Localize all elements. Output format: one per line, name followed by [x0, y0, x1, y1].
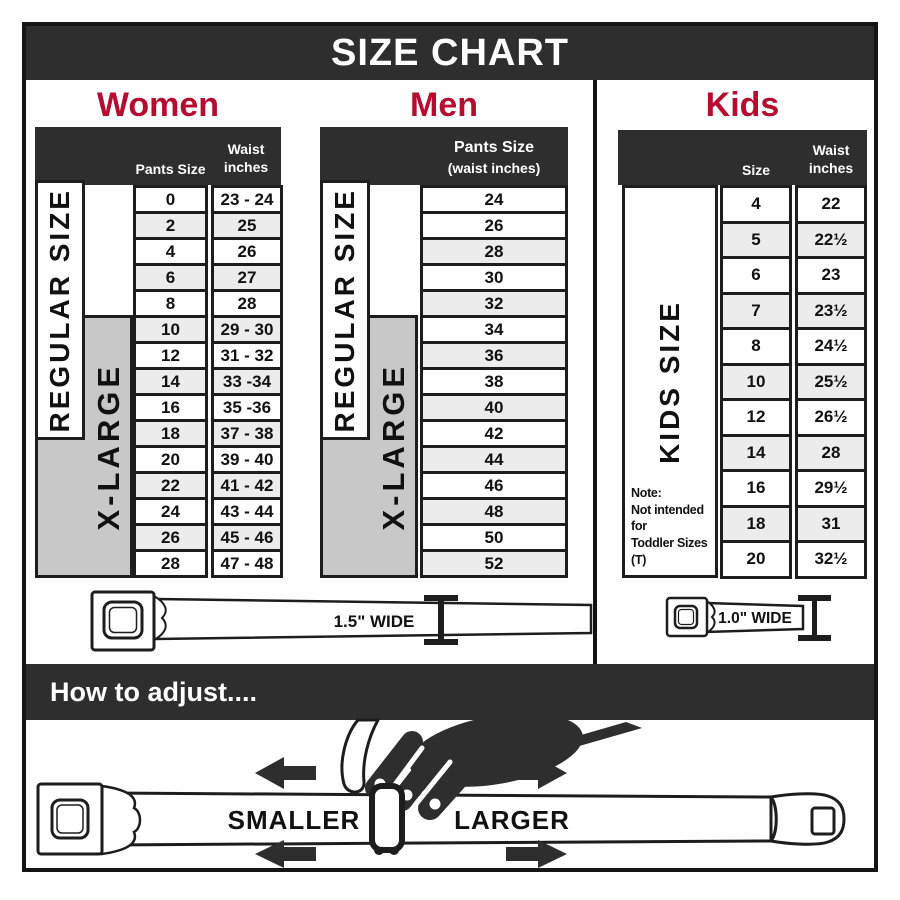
size-cell: 16: [720, 469, 792, 508]
table-row: 1226½: [720, 398, 867, 437]
waist-cell: 23 - 24: [211, 185, 283, 214]
table-row: 1025½: [720, 363, 867, 402]
waist-cell: 31: [795, 505, 867, 544]
adjustment-illustration: SMALLER LARGER: [26, 720, 874, 868]
size-cell: 18: [720, 505, 792, 544]
size-cell: 30: [420, 263, 568, 292]
table-row: 32: [420, 289, 568, 318]
men-regular-box: REGULAR SIZE: [320, 180, 370, 440]
size-cell: 6: [720, 256, 792, 295]
size-cell: 10: [133, 315, 208, 344]
table-row: 1837 - 38: [133, 419, 283, 448]
table-row: 50: [420, 523, 568, 552]
size-cell: 8: [133, 289, 208, 318]
table-row: 2241 - 42: [133, 471, 283, 500]
arrow-right-bottom-icon: [506, 840, 567, 868]
size-cell: 7: [720, 292, 792, 331]
waist-cell: 41 - 42: [211, 471, 283, 500]
size-cell: 18: [133, 419, 208, 448]
table-row: 023 - 24: [133, 185, 283, 214]
men-table-header: Pants Size (waist inches): [320, 127, 568, 185]
waist-cell: 33 -34: [211, 367, 283, 396]
size-cell: 10: [720, 363, 792, 402]
size-cell: 14: [133, 367, 208, 396]
size-cell: 6: [133, 263, 208, 292]
size-cell: 2: [133, 211, 208, 240]
men-heading: Men: [320, 86, 568, 124]
waist-cell: 28: [211, 289, 283, 318]
size-cell: 8: [720, 327, 792, 366]
table-row: 1629½: [720, 469, 867, 508]
waist-cell: 22½: [795, 221, 867, 260]
kids-belt-illustration: 1.0" WIDE: [662, 586, 867, 658]
table-row: 38: [420, 367, 568, 396]
arrow-left-top-icon: [255, 757, 316, 789]
table-row: 36: [420, 341, 568, 370]
size-cell: 16: [133, 393, 208, 422]
table-row: 828: [133, 289, 283, 318]
smaller-label: SMALLER: [228, 805, 361, 835]
table-row: 42: [420, 419, 568, 448]
table-row: 28: [420, 237, 568, 266]
waist-cell: 23½: [795, 292, 867, 331]
page-title: SIZE CHART: [331, 32, 569, 75]
table-row: 24: [420, 185, 568, 214]
how-to-adjust-title: How to adjust....: [26, 677, 257, 708]
women-regular-box: REGULAR SIZE: [35, 180, 85, 440]
size-cell: 24: [133, 497, 208, 526]
table-row: 824½: [720, 327, 867, 366]
waist-cell: 45 - 46: [211, 523, 283, 552]
seatbelt-buckle-icon: [92, 592, 154, 650]
size-cell: 46: [420, 471, 568, 500]
women-table-header: Pants Size Waist inches: [35, 127, 281, 185]
table-row: 2847 - 48: [133, 549, 283, 578]
kids-belt-width-label: 1.0" WIDE: [718, 610, 792, 627]
waist-cell: 31 - 32: [211, 341, 283, 370]
waist-cell: 29 - 30: [211, 315, 283, 344]
size-cell: 4: [720, 185, 792, 224]
size-cell: 32: [420, 289, 568, 318]
table-row: 1029 - 30: [133, 315, 283, 344]
size-cell: 22: [133, 471, 208, 500]
men-table: 242628303234363840424446485052: [420, 185, 568, 578]
waist-cell: 26: [211, 237, 283, 266]
seatbelt-buckle-icon: [38, 784, 102, 854]
waist-cell: 26½: [795, 398, 867, 437]
table-row: 46: [420, 471, 568, 500]
kids-col1-header: Size: [720, 161, 792, 179]
kids-table: 422522½623723½824½1025½1226½14281629½183…: [720, 185, 867, 579]
table-row: 2443 - 44: [133, 497, 283, 526]
adult-belt-illustration: 1.5" WIDE: [66, 586, 593, 658]
section-divider: [593, 80, 597, 664]
how-to-adjust-bar: How to adjust....: [26, 664, 874, 720]
waist-cell: 25: [211, 211, 283, 240]
waist-cell: 29½: [795, 469, 867, 508]
size-cell: 38: [420, 367, 568, 396]
table-row: 623: [720, 256, 867, 295]
size-cell: 34: [420, 315, 568, 344]
seatbelt-buckle-icon: [667, 598, 707, 636]
size-cell: 28: [420, 237, 568, 266]
women-heading: Women: [35, 86, 281, 124]
table-row: 44: [420, 445, 568, 474]
table-row: 26: [420, 211, 568, 240]
table-row: 627: [133, 263, 283, 292]
men-col-header: Pants Size (waist inches): [420, 138, 568, 177]
size-cell: 50: [420, 523, 568, 552]
waist-cell: 23: [795, 256, 867, 295]
men-regular-label: REGULAR SIZE: [329, 188, 361, 432]
size-cell: 48: [420, 497, 568, 526]
table-row: 225: [133, 211, 283, 240]
kids-note: Note: Not intended for Toddler Sizes (T): [631, 485, 719, 569]
table-row: 1428: [720, 434, 867, 473]
waist-cell: 35 -36: [211, 393, 283, 422]
table-row: 723½: [720, 292, 867, 331]
size-cell: 44: [420, 445, 568, 474]
size-cell: 0: [133, 185, 208, 214]
size-cell: 28: [133, 549, 208, 578]
kids-size-box: KIDS SIZE Note: Not intended for Toddler…: [622, 185, 718, 578]
kids-col2-header: Waist inches: [795, 141, 867, 177]
table-row: 34: [420, 315, 568, 344]
women-xlarge-label: X-LARGE: [91, 363, 127, 531]
size-cell: 14: [720, 434, 792, 473]
waist-cell: 39 - 40: [211, 445, 283, 474]
table-row: 2032½: [720, 540, 867, 579]
table-row: 40: [420, 393, 568, 422]
size-cell: 12: [720, 398, 792, 437]
size-cell: 5: [720, 221, 792, 260]
title-bar: SIZE CHART: [26, 26, 874, 80]
men-xlarge-band: X-LARGE: [370, 315, 418, 578]
waist-cell: 24½: [795, 327, 867, 366]
waist-cell: 27: [211, 263, 283, 292]
table-row: 2645 - 46: [133, 523, 283, 552]
women-col1-header: Pants Size: [133, 160, 208, 178]
size-cell: 26: [133, 523, 208, 552]
waist-cell: 37 - 38: [211, 419, 283, 448]
size-cell: 4: [133, 237, 208, 266]
kids-heading: Kids: [618, 86, 867, 124]
size-cell: 24: [420, 185, 568, 214]
size-cell: 36: [420, 341, 568, 370]
adult-belt-width-label: 1.5" WIDE: [334, 612, 415, 631]
table-row: 522½: [720, 221, 867, 260]
waist-cell: 32½: [795, 540, 867, 579]
size-cell: 12: [133, 341, 208, 370]
size-chart-sheet: SIZE CHART Women Men Kids Pants Size Wai…: [22, 22, 878, 872]
table-row: 1831: [720, 505, 867, 544]
table-row: 30: [420, 263, 568, 292]
table-row: 426: [133, 237, 283, 266]
waist-cell: 28: [795, 434, 867, 473]
women-col2-header: Waist inches: [210, 140, 282, 176]
table-row: 1433 -34: [133, 367, 283, 396]
kids-size-label: KIDS SIZE: [654, 300, 686, 464]
women-regular-label: REGULAR SIZE: [44, 188, 76, 432]
waist-cell: 22: [795, 185, 867, 224]
table-row: 422: [720, 185, 867, 224]
table-row: 52: [420, 549, 568, 578]
table-row: 2039 - 40: [133, 445, 283, 474]
table-row: 48: [420, 497, 568, 526]
size-cell: 20: [133, 445, 208, 474]
size-cell: 20: [720, 540, 792, 579]
size-cell: 26: [420, 211, 568, 240]
women-table: 023 - 242254266278281029 - 301231 - 3214…: [133, 185, 283, 578]
belt-slider: [372, 786, 402, 855]
kids-table-header: Size Waist inches: [618, 130, 867, 185]
waist-cell: 47 - 48: [211, 549, 283, 578]
size-cell: 40: [420, 393, 568, 422]
waist-cell: 43 - 44: [211, 497, 283, 526]
size-cell: 42: [420, 419, 568, 448]
belt-tip-hole: [812, 808, 834, 834]
men-xlarge-label: X-LARGE: [376, 363, 412, 531]
women-xlarge-band: X-LARGE: [85, 315, 133, 578]
size-cell: 52: [420, 549, 568, 578]
table-row: 1635 -36: [133, 393, 283, 422]
waist-cell: 25½: [795, 363, 867, 402]
larger-label: LARGER: [454, 805, 570, 835]
table-row: 1231 - 32: [133, 341, 283, 370]
